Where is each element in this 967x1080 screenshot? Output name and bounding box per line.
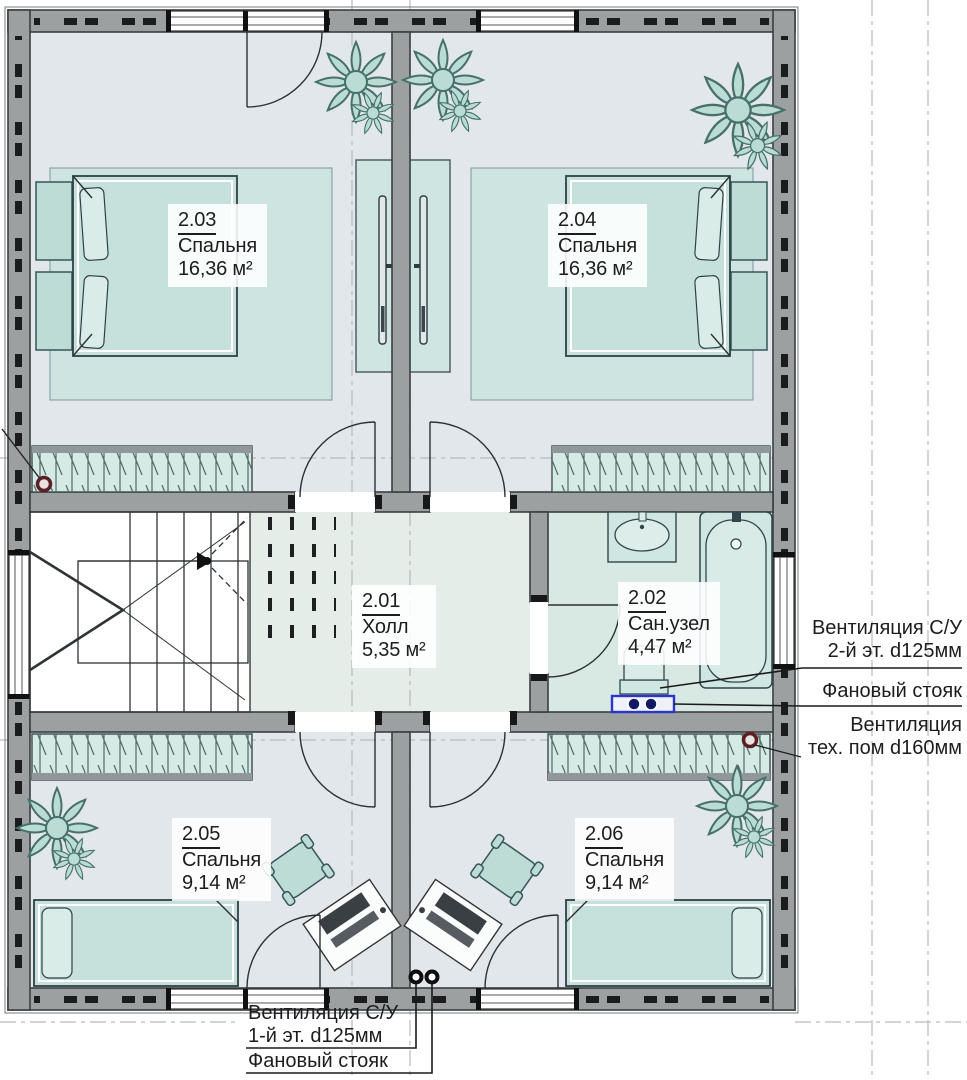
room-label-2-04: 2.04 Спальня 16,36 м²: [548, 204, 647, 287]
sewer-riser-icon: [612, 696, 674, 712]
room-name: Спальня: [585, 849, 664, 872]
floor-plan-page: 2.03 Спальня 16,36 м² 2.04 Спальня 16,36…: [0, 0, 967, 1080]
sink-icon: [608, 512, 676, 562]
room-number: 2.01: [362, 590, 400, 616]
room-name: Холл: [362, 616, 426, 639]
room-label-2-03: 2.03 Спальня 16,36 м²: [168, 204, 267, 287]
annotation-line: Фановый стояк: [800, 680, 962, 703]
room-label-2-05: 2.05 Спальня 9,14 м²: [172, 818, 271, 901]
room-number: 2.05: [182, 823, 220, 849]
room-name: Сан.узел: [628, 613, 710, 636]
room-label-2-06: 2.06 Спальня 9,14 м²: [575, 818, 674, 901]
room-area: 4,47 м²: [628, 636, 710, 659]
annotation-vent-su-2nd: Вентиляция С/У 2-й эт. d125мм: [800, 617, 962, 663]
room-area: 9,14 м²: [182, 872, 261, 895]
annotation-vent-tech: Вентиляция тех. пом d160мм: [800, 714, 962, 760]
annotation-vent-su-1st: Вентиляция С/У 1-й эт. d125мм: [248, 1002, 398, 1048]
annotation-sewer-riser-right: Фановый стояк: [800, 680, 962, 703]
hall-tile-grid: [256, 514, 336, 644]
room-number: 2.03: [178, 209, 216, 235]
annotation-line: Вентиляция С/У: [800, 617, 962, 640]
floor-plan-drawing: [0, 0, 967, 1080]
room-area: 16,36 м²: [178, 258, 257, 281]
wardrobe-icon: [32, 446, 252, 492]
room-number: 2.06: [585, 823, 623, 849]
room-name: Спальня: [178, 235, 257, 258]
annotation-line: Вентиляция С/У: [248, 1002, 398, 1025]
room-name: Спальня: [558, 235, 637, 258]
room-number: 2.02: [628, 587, 666, 613]
room-label-2-01: 2.01 Холл 5,35 м²: [352, 585, 436, 668]
annotation-line: тех. пом d160мм: [800, 737, 962, 760]
wardrobe-icon: [32, 734, 252, 780]
annotation-sewer-riser-bottom: Фановый стояк: [248, 1050, 388, 1073]
bed-icon: [34, 900, 238, 986]
room-area: 9,14 м²: [585, 872, 664, 895]
wardrobe-icon: [552, 446, 770, 492]
annotation-line: 1-й эт. d125мм: [248, 1025, 398, 1048]
room-area: 5,35 м²: [362, 639, 426, 662]
room-area: 16,36 м²: [558, 258, 637, 281]
room-label-2-02: 2.02 Сан.узел 4,47 м²: [618, 582, 720, 665]
room-name: Спальня: [182, 849, 261, 872]
room-number: 2.04: [558, 209, 596, 235]
annotation-line: Вентиляция: [800, 714, 962, 737]
annotation-line: 2-й эт. d125мм: [800, 640, 962, 663]
bed-icon: [566, 900, 770, 986]
annotation-line: Фановый стояк: [248, 1050, 388, 1073]
